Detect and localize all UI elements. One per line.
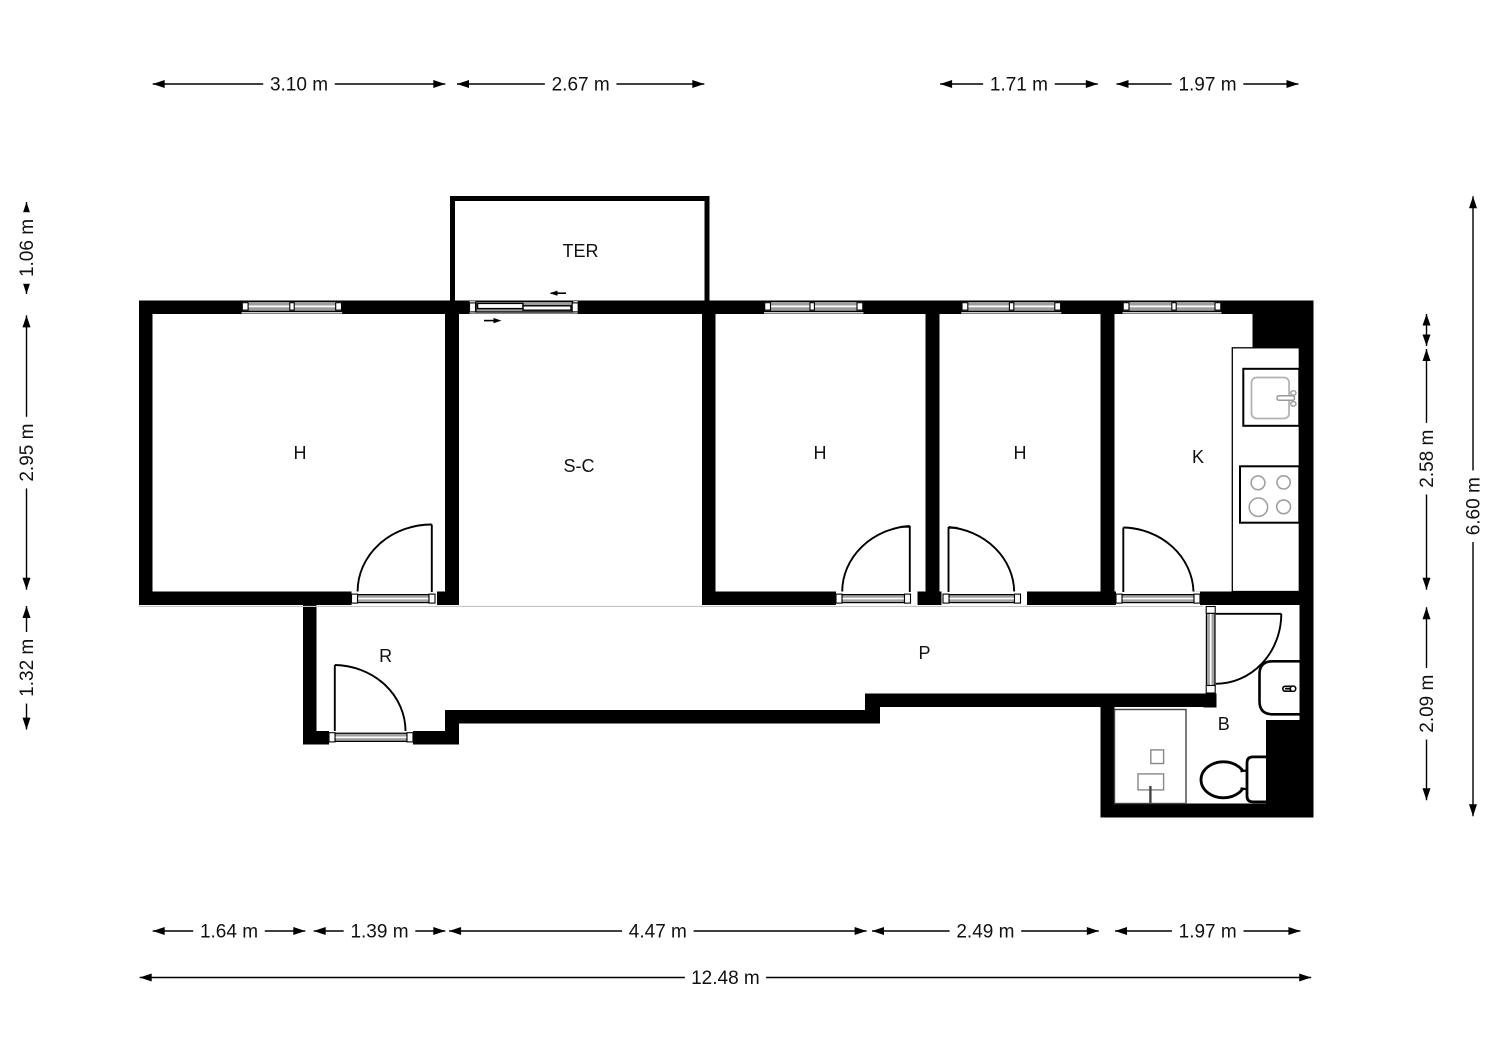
svg-text:4.47 m: 4.47 m [629,922,687,943]
svg-text:K: K [1192,447,1204,467]
svg-text:H: H [294,443,307,463]
svg-text:1.06 m: 1.06 m [17,219,38,277]
svg-text:1.71 m: 1.71 m [990,75,1048,96]
svg-text:TER: TER [563,241,599,261]
svg-text:3.10 m: 3.10 m [270,75,328,96]
svg-text:H: H [1014,443,1027,463]
svg-text:1.97 m: 1.97 m [1179,922,1237,943]
svg-text:1.97 m: 1.97 m [1178,75,1236,96]
svg-text:6.60 m: 6.60 m [1464,477,1485,535]
svg-text:1.64 m: 1.64 m [200,922,258,943]
svg-text:P: P [918,643,930,663]
svg-text:2.09 m: 2.09 m [1417,675,1438,733]
svg-text:12.48 m: 12.48 m [691,968,760,989]
svg-text:2.95 m: 2.95 m [17,424,38,482]
svg-text:2.49 m: 2.49 m [956,922,1014,943]
svg-text:2.58 m: 2.58 m [1417,430,1438,488]
svg-text:1.39 m: 1.39 m [350,922,408,943]
svg-text:H: H [814,443,827,463]
svg-text:R: R [379,646,392,666]
svg-text:S-C: S-C [564,456,595,476]
svg-text:2.67 m: 2.67 m [552,75,610,96]
svg-text:B: B [1218,714,1230,734]
svg-text:1.32 m: 1.32 m [17,639,38,697]
